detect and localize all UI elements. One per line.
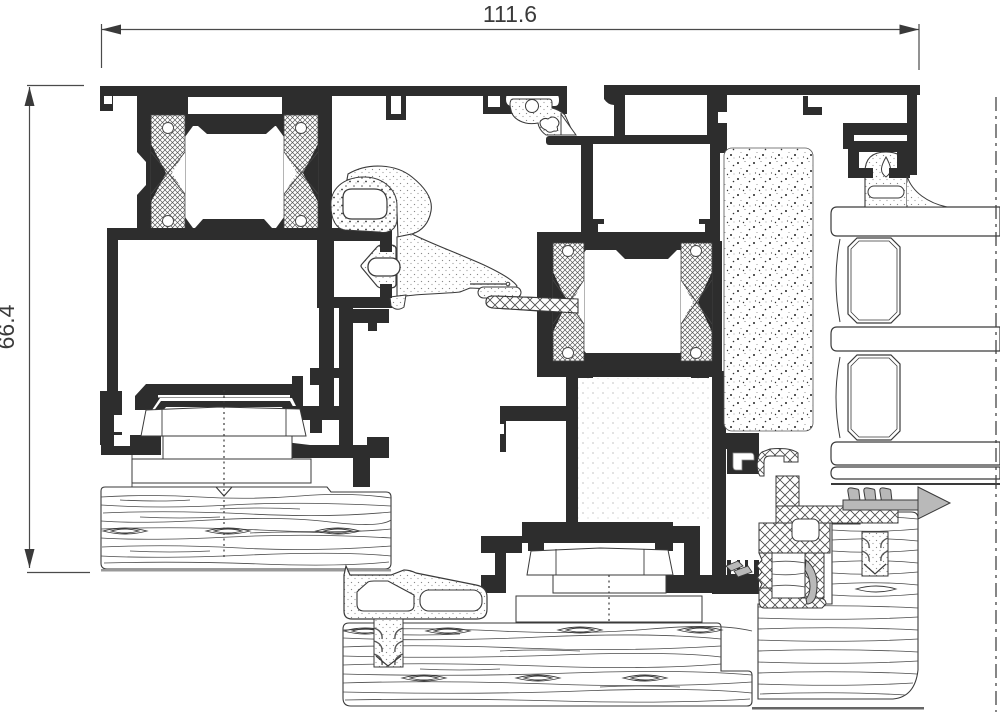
- svg-text:111.6: 111.6: [483, 1, 537, 27]
- svg-text:66.4: 66.4: [0, 304, 19, 349]
